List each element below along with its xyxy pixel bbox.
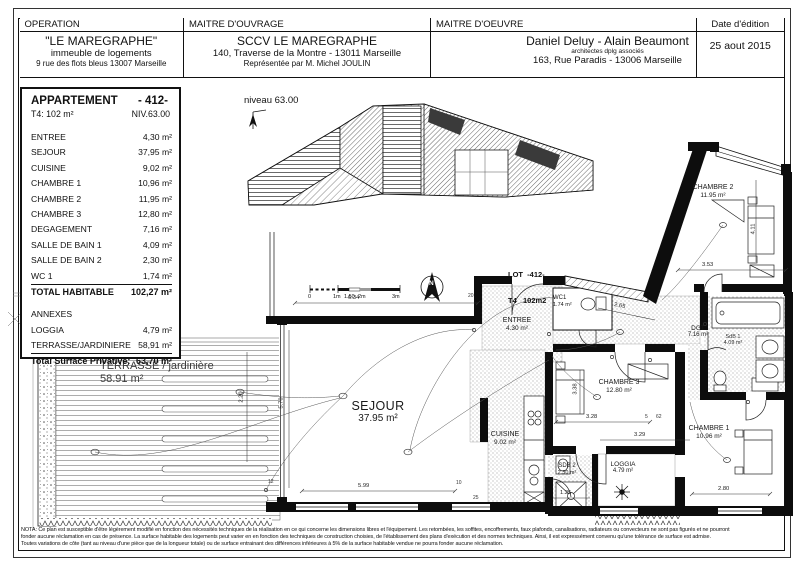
room-name: ENTREE	[31, 130, 66, 145]
dimension-label: 3.28	[586, 414, 597, 420]
surface-row: TERRASSE/JARDINIERE58,91 m²	[31, 338, 172, 354]
surface-row: SALLE DE BAIN 22,30 m²	[31, 253, 172, 268]
room-area: 4.30 m²	[494, 325, 540, 332]
room-name: SEJOUR	[31, 145, 66, 160]
room-area: 4.79 m²	[600, 468, 646, 475]
room-label-wc1: WC1 1.74 m²	[553, 295, 587, 308]
room-name: TERRASSE/JARDINIERE	[31, 338, 131, 353]
room-name: CUISINE	[482, 431, 528, 439]
chambre2-door	[704, 274, 722, 292]
surface-row: WC 11,74 m²	[31, 269, 172, 285]
room-area: 7.16 m²	[678, 332, 718, 339]
surface-row: LOGGIA4,79 m²	[31, 323, 172, 338]
lot-line1: LOT -412-	[508, 271, 546, 280]
surface-row: SALLE DE BAIN 14,09 m²	[31, 238, 172, 253]
room-area: 11.95 m²	[682, 192, 744, 199]
room-area: 4.09 m²	[714, 340, 752, 346]
nota-block: NOTA: Ce plan est susceptible d'être lég…	[21, 527, 783, 549]
room-name: CHAMBRE 1	[31, 176, 81, 191]
room-label-chambre3: CHAMBRE 3 12.80 m²	[588, 379, 650, 395]
dimension-label: 1.25	[560, 490, 571, 496]
scale-tick: 0	[308, 294, 311, 300]
room-area: 12,80 m²	[138, 207, 172, 222]
washbasin-icon	[762, 340, 778, 354]
surface-row: DEGAGEMENT7,16 m²	[31, 222, 172, 237]
room-name: DGT	[678, 325, 718, 332]
switch-icon	[648, 358, 651, 361]
card-title: APPARTEMENT	[31, 95, 118, 107]
dimension-label: 3.29	[634, 432, 645, 438]
maitre-doeuvre-line3: 163, Rue Paradis - 13006 Marseille	[519, 55, 696, 66]
bathtub-icon	[712, 298, 784, 328]
room-label-entree: ENTREE 4.30 m²	[494, 317, 540, 333]
maitre-doeuvre-label: MAITRE D'OEUVRE	[431, 18, 696, 32]
nota-line2: fonder aucune réclamation en cas de prés…	[21, 534, 783, 541]
nota-line3: Toutes variations de côte (tant au nivea…	[21, 541, 783, 548]
operation-line3: 9 rue des flots bleus 13007 Marseille	[20, 59, 184, 68]
room-area: 7,16 m²	[143, 222, 172, 237]
card-title-row: APPARTEMENT - 412-	[31, 95, 172, 107]
room-area: 1.74 m²	[553, 302, 587, 308]
room-name: CHAMBRE 3	[31, 207, 81, 222]
room-name: WC 1	[31, 269, 52, 284]
surface-row: CHAMBRE 211,95 m²	[31, 192, 172, 207]
card-subtitle-row: T4: 102 m² NIV.63.00	[31, 109, 172, 119]
room-name: ENTREE	[494, 317, 540, 325]
operation-title: "LE MAREGRAPHE"	[20, 34, 184, 48]
annexes-label: ANNEXES	[31, 307, 72, 322]
key-plan	[248, 104, 593, 205]
room-area: 37.95 m²	[318, 413, 438, 425]
room-area: 4,09 m²	[143, 238, 172, 253]
card-level: NIV.63.00	[132, 109, 170, 119]
washbasin-icon	[762, 364, 778, 378]
header-cell-operation: OPERATION "LE MAREGRAPHE" immeuble de lo…	[20, 18, 184, 78]
annexes-header-row: ANNEXES	[31, 307, 172, 322]
date-edition-label: Date d'édition	[697, 18, 784, 32]
room-area: 2,30 m²	[143, 253, 172, 268]
maitre-douvrage-line2: 140, Traverse de la Montre - 13011 Marse…	[184, 48, 430, 59]
key-plan-north-icon	[249, 110, 266, 129]
jardiniere-icon	[614, 484, 630, 500]
small-dim-mark: 5	[645, 414, 648, 420]
room-label-sdb2: SDB 2 2.30 m²	[548, 463, 586, 476]
total-privative-row: Total Surface Privative:63,70 m²	[31, 354, 172, 369]
surface-row: SEJOUR37,95 m²	[31, 145, 172, 160]
room-area: 4,79 m²	[143, 323, 172, 338]
room-name: CHAMBRE 3	[588, 379, 650, 387]
room-area: 37,95 m²	[138, 145, 172, 160]
total-value: 102,27 m²	[131, 285, 172, 300]
north-arrow-icon	[421, 272, 443, 302]
dimension-label: 5.70	[279, 397, 285, 408]
surface-row: ENTREE4,30 m²	[31, 130, 172, 145]
room-label-loggia: LOGGIA 4.79 m²	[600, 461, 646, 475]
room-name: LOGGIA	[31, 323, 64, 338]
room-label-chambre1: CHAMBRE 1 10.96 m²	[678, 425, 740, 441]
total-value: 63,70 m²	[136, 354, 172, 369]
card-type: T4: 102 m²	[31, 109, 74, 119]
room-area: 10.96 m²	[678, 433, 740, 440]
room-name: LOGGIA	[600, 461, 646, 468]
room-name: CHAMBRE 2	[31, 192, 81, 207]
sink-icon	[529, 465, 539, 475]
scale-tick: 1m	[333, 294, 341, 300]
toilet-icon	[714, 371, 726, 385]
room-area: 9.02 m²	[482, 439, 528, 446]
card-lot-number: - 412-	[138, 95, 168, 107]
room-area: 9,02 m²	[143, 161, 172, 176]
operation-line2: immeuble de logements	[20, 48, 184, 59]
small-dim-mark: 12	[268, 479, 274, 485]
desk-icon	[712, 200, 744, 222]
drawing-sheet: OPERATION "LE MAREGRAPHE" immeuble de lo…	[0, 0, 800, 566]
dimension-label: 5.99	[358, 483, 369, 489]
room-name: SDB 2	[548, 463, 586, 470]
small-dim-mark: 62	[656, 414, 662, 420]
small-dim-mark: 20	[468, 293, 474, 299]
room-area: 1,74 m²	[143, 269, 172, 284]
hob-icon	[528, 411, 534, 417]
total-label: Total Surface Privative:	[31, 354, 130, 369]
room-label-chambre2: CHAMBRE 2 11.95 m²	[682, 184, 744, 200]
room-area: 2.30 m²	[548, 470, 586, 476]
bed-icon	[744, 430, 772, 474]
total-habitable-row: TOTAL HABITABLE102,27 m²	[31, 285, 172, 300]
room-name: SEJOUR	[318, 399, 438, 413]
header-cell-maitre-douvrage: MAITRE D'OUVRAGE SCCV LE MAREGRAPHE 140,…	[183, 18, 430, 78]
lot-line2: T4 102m2	[508, 297, 546, 306]
scale-bar	[310, 285, 400, 293]
apartment-surface-card: APPARTEMENT - 412- T4: 102 m² NIV.63.00 …	[20, 87, 181, 359]
room-name: CUISINE	[31, 161, 66, 176]
surface-table: ENTREE4,30 m² SEJOUR37,95 m² CUISINE9,02…	[31, 130, 172, 370]
header-cell-maitre-doeuvre: MAITRE D'OEUVRE Daniel Deluy - Alain Bea…	[430, 18, 696, 78]
maitre-douvrage-label: MAITRE D'OUVRAGE	[184, 18, 430, 32]
terrace-edge-hatch	[40, 518, 272, 526]
dimension-label: 3.53	[702, 262, 713, 268]
room-name: WC1	[553, 295, 587, 302]
switch-icon	[610, 355, 613, 358]
dimension-label: 2.20	[239, 391, 245, 402]
room-name: SALLE DE BAIN 2	[31, 253, 102, 268]
maitre-doeuvre-line2: architectes dplg associés	[519, 48, 696, 55]
maitre-douvrage-title: SCCV LE MAREGRAPHE	[184, 34, 430, 48]
room-area: 4,30 m²	[143, 130, 172, 145]
north-letter: N	[429, 280, 434, 287]
total-label: TOTAL HABITABLE	[31, 285, 114, 300]
room-label-sdb1: SdB 1 4.09 m²	[714, 334, 752, 347]
header-cell-date: Date d'édition 25 aout 2015	[696, 18, 784, 78]
surface-row: CHAMBRE 110,96 m²	[31, 176, 172, 191]
room-name: CHAMBRE 1	[678, 425, 740, 433]
room-area: 11,95 m²	[139, 192, 172, 207]
room-area: 12.80 m²	[588, 387, 650, 394]
room-name: DEGAGEMENT	[31, 222, 92, 237]
maitre-douvrage-line3: Représentée par M. Michel JOULIN	[184, 59, 430, 68]
key-plan-level-label: niveau 63.00	[244, 95, 298, 106]
dimension-label: 2.80	[718, 486, 729, 492]
small-dim-mark: 25	[473, 495, 479, 501]
scale-tick: 3m	[392, 294, 400, 300]
toilet-icon	[596, 297, 606, 310]
room-label-dgt: DGT 7.16 m²	[678, 325, 718, 339]
surface-row: CUISINE9,02 m²	[31, 161, 172, 176]
switch-icon	[746, 400, 749, 403]
room-area: 58.91 m²	[100, 373, 270, 386]
room-area: 58,91 m²	[138, 338, 172, 353]
maitre-doeuvre-title: Daniel Deluy - Alain Beaumont	[519, 34, 696, 48]
operation-label: OPERATION	[20, 18, 184, 32]
room-label-cuisine: CUISINE 9.02 m²	[482, 431, 528, 447]
date-edition-value: 25 aout 2015	[697, 40, 784, 52]
room-label-sejour: SEJOUR 37.95 m²	[318, 399, 438, 425]
room-area: 10,96 m²	[138, 176, 172, 191]
room-name: CHAMBRE 2	[682, 184, 744, 192]
lot-label: LOT -412- T4 102m2	[508, 254, 546, 322]
dimension-label: 3.38	[573, 383, 579, 394]
small-dim-mark: 10	[456, 480, 462, 486]
surface-row: CHAMBRE 312,80 m²	[31, 207, 172, 222]
nota-line1: NOTA: Ce plan est susceptible d'être lég…	[21, 527, 783, 534]
room-name: SALLE DE BAIN 1	[31, 238, 102, 253]
kitchen-counter	[524, 396, 544, 504]
dimension-label: 6.34	[348, 295, 359, 301]
dimension-label: 4.11	[750, 224, 756, 235]
